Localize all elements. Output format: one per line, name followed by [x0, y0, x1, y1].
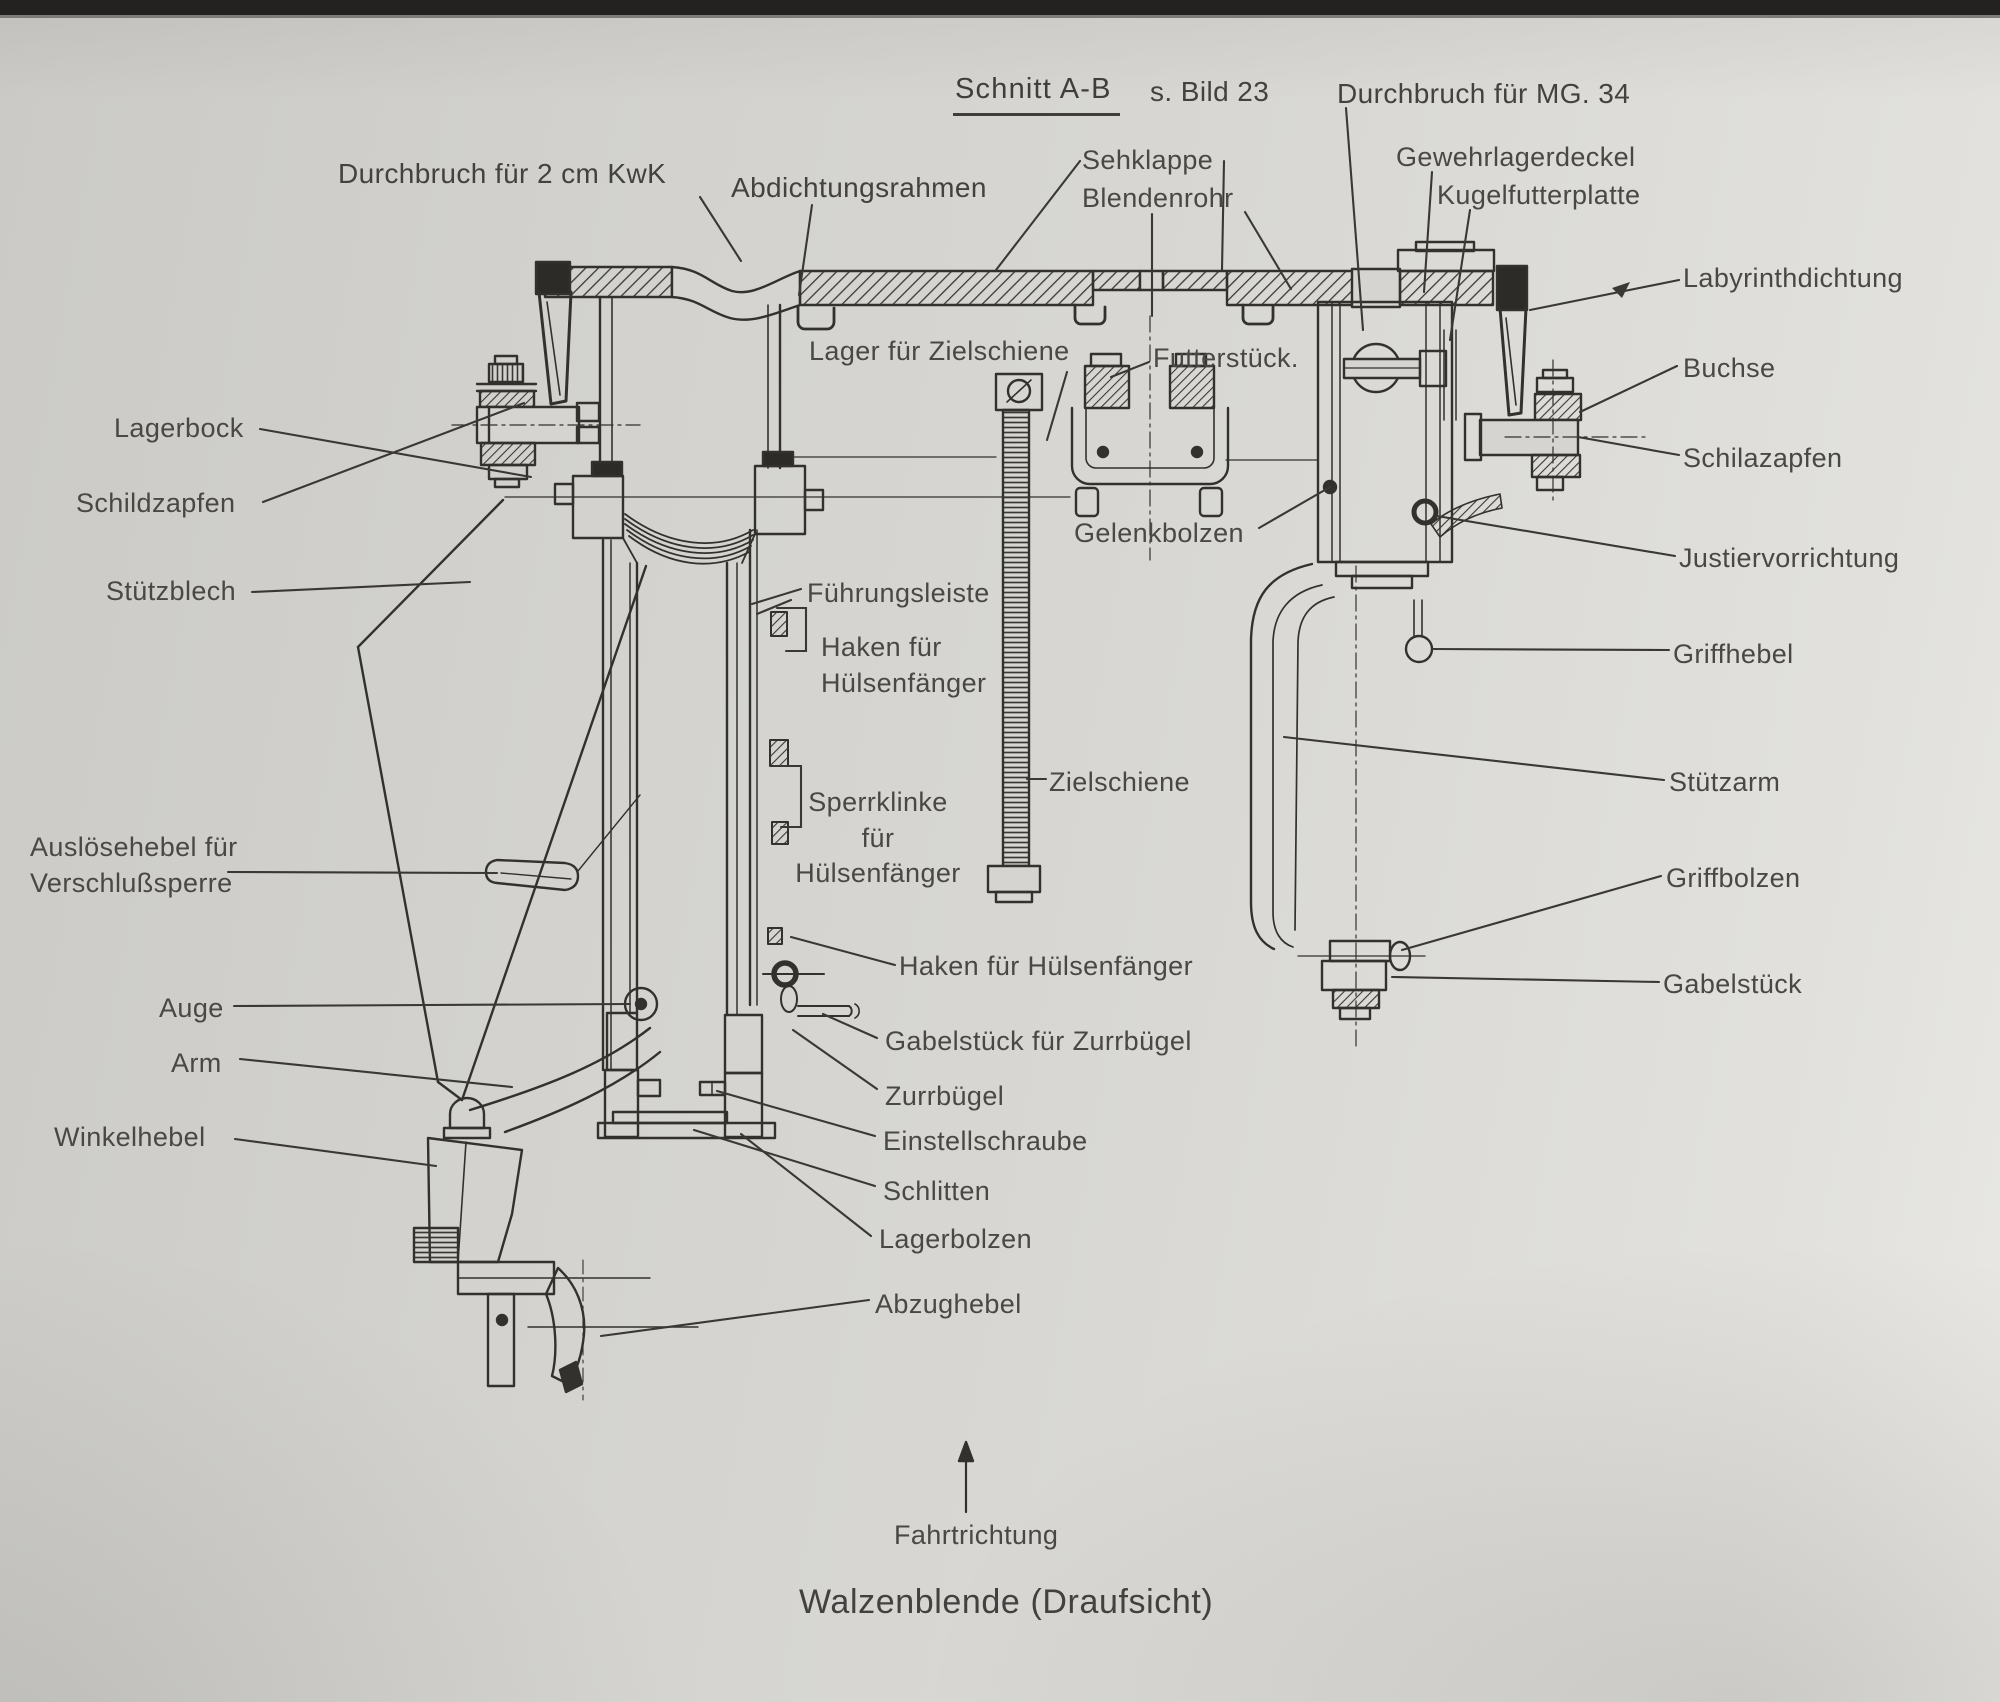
label-fuehrungsleiste: Führungsleiste [807, 576, 990, 612]
label-abzughebel: Abzughebel [875, 1287, 1022, 1323]
label-winkelhebel: Winkelhebel [54, 1120, 205, 1156]
label-gabelstueck-fuer-zurrbuegel: Gabelstück für Zurrbügel [885, 1024, 1192, 1060]
haken-unten-part [768, 928, 782, 944]
section-ref: s. Bild 23 [1150, 74, 1269, 111]
label-griffhebel: Griffhebel [1673, 637, 1794, 673]
label-durchbruch-mg34: Durchbruch für MG. 34 [1337, 76, 1630, 113]
label-griffbolzen: Griffbolzen [1666, 861, 1800, 897]
label-zielschiene: Zielschiene [1049, 765, 1190, 801]
label-labyrinthdichtung: Labyrinthdichtung [1683, 261, 1903, 297]
label-haken-huelsenfaenger-oben: Haken für Hülsenfänger [821, 630, 986, 701]
label-gabelstueck: Gabelstück [1663, 967, 1802, 1003]
zielschiene-rod [988, 374, 1042, 902]
label-sperrklinke: Sperrklinke für Hülsenfänger [788, 785, 968, 892]
figure-caption: Walzenblende (Draufsicht) [799, 1580, 1213, 1625]
stuetzarm-part [1251, 564, 1425, 1046]
schlitten-part [613, 1112, 727, 1123]
label-schlitten: Schlitten [883, 1174, 990, 1210]
label-abdichtungsrahmen: Abdichtungsrahmen [731, 170, 987, 207]
kwk-cradle-mount [555, 297, 823, 564]
buchse-part [1535, 394, 1581, 420]
label-futterstueck: Futterstück. [1153, 341, 1299, 377]
gabelstueck-part [1333, 990, 1379, 1008]
label-auge: Auge [159, 991, 224, 1027]
label-durchbruch-kwk: Durchbruch für 2 cm KwK [338, 156, 666, 193]
label-lagerbock: Lagerbock [114, 411, 244, 447]
label-stuetzblech: Stützblech [106, 574, 236, 610]
label-lager-fuer-zielschiene: Lager für Zielschiene [809, 334, 1070, 370]
label-zurrbuegel: Zurrbügel [885, 1079, 1004, 1115]
label-schildzapfen: Schildzapfen [76, 486, 235, 522]
griffhebel-part [1406, 600, 1432, 662]
label-gewehrlagerdeckel: Gewehrlagerdeckel [1396, 140, 1635, 176]
mg34-housing [1318, 302, 1456, 588]
lagerbolzen-part [598, 1123, 775, 1138]
scanned-manual-page: Schnitt A-B s. Bild 23 Durchbruch für MG… [0, 0, 2000, 1702]
arm-part [470, 988, 660, 1132]
label-buchse: Buchse [1683, 351, 1775, 387]
sehklappe-recess [1093, 271, 1140, 290]
label-sehklappe: Sehklappe [1082, 143, 1213, 179]
label-haken-huelsenfaenger-unten: Haken für Hülsenfänger [899, 949, 1193, 985]
label-arm: Arm [171, 1046, 222, 1082]
label-gelenkbolzen: Gelenkbolzen [1074, 516, 1244, 552]
gewehrlagerdeckel-cap [1398, 242, 1494, 271]
abzughebel-part [546, 1260, 584, 1400]
winkelhebel-assembly [414, 1098, 698, 1400]
label-einstellschraube: Einstellschraube [883, 1124, 1088, 1160]
label-ausloesehebel: Auslösehebel für Verschlußsperre [30, 830, 238, 901]
walzenblende-technical-drawing [0, 0, 2000, 1702]
armor-band-section [536, 242, 1527, 415]
label-justiervorrichtung: Justiervorrichtung [1679, 541, 1899, 577]
label-lagerbolzen: Lagerbolzen [879, 1222, 1032, 1258]
section-title: Schnitt A-B [953, 70, 1120, 116]
label-stuetzarm: Stützarm [1669, 765, 1780, 801]
fahrtrichtung-arrow-icon [959, 1442, 973, 1512]
haken-oben-part [771, 612, 787, 636]
sperrklinke-part [770, 740, 788, 766]
labyrinth-seal [1497, 266, 1527, 310]
label-fahrtrichtung: Fahrtrichtung [894, 1518, 1058, 1554]
right-trunnion-assembly [1465, 360, 1648, 505]
justiervorrichtung-part [1414, 494, 1502, 537]
label-blendenrohr: Blendenrohr [1082, 181, 1234, 217]
label-kugelfutterplatte: Kugelfutterplatte [1437, 178, 1640, 214]
label-schilazapfen: Schilazapfen [1683, 441, 1842, 477]
